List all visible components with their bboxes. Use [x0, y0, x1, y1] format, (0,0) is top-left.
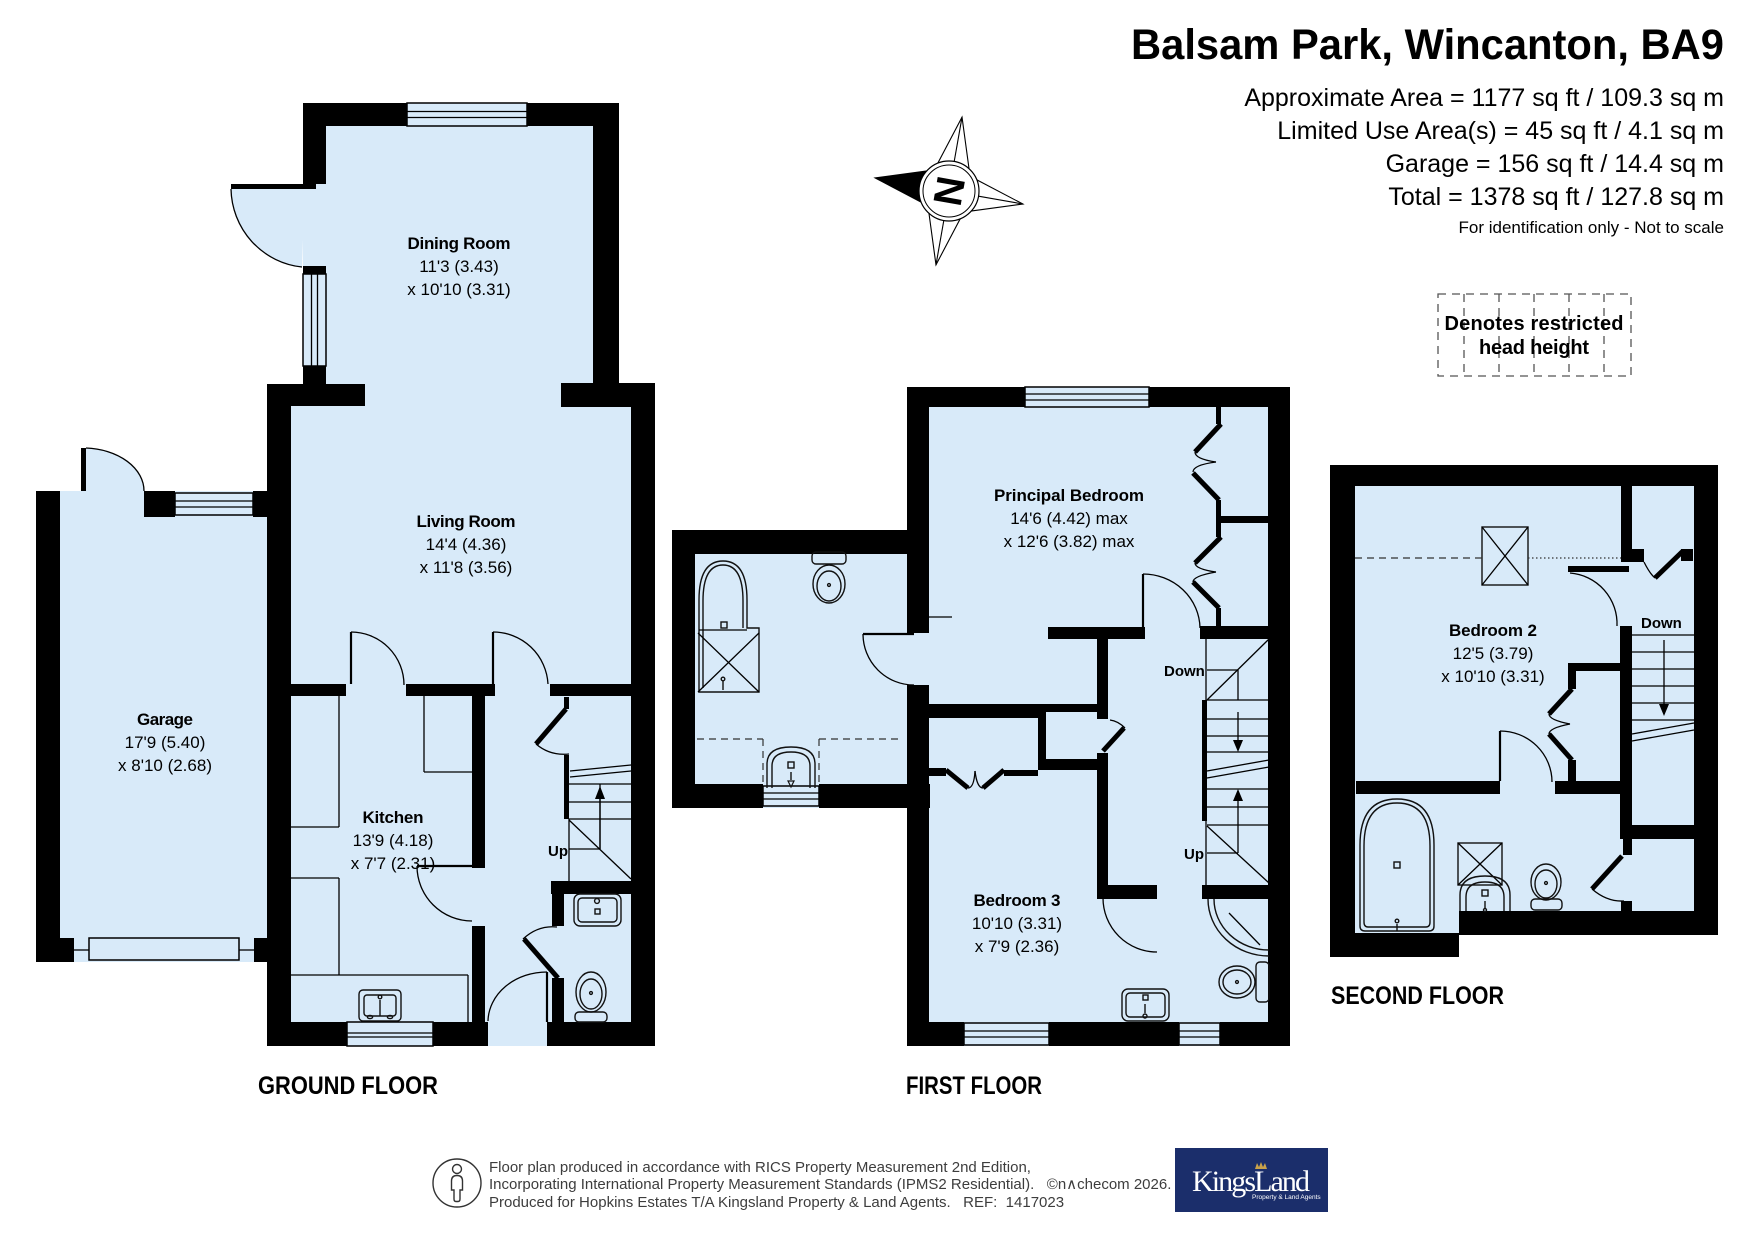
svg-text:Total = 1378 sq ft / 127.8 sq: Total = 1378 sq ft / 127.8 sq m — [1388, 183, 1724, 211]
svg-text:Bedroom 2: Bedroom 2 — [1449, 621, 1537, 640]
svg-text:x 11'8 (3.56): x 11'8 (3.56) — [420, 558, 513, 577]
svg-text:head height: head height — [1479, 337, 1589, 359]
svg-text:Produced for Hopkins Estates T: Produced for Hopkins Estates T/A Kingsla… — [489, 1194, 1064, 1211]
svg-text:11'3 (3.43): 11'3 (3.43) — [419, 257, 498, 276]
svg-text:Up: Up — [548, 843, 568, 860]
svg-text:Incorporating International Pr: Incorporating International Property Mea… — [489, 1176, 1171, 1193]
svg-text:Floor plan produced in accorda: Floor plan produced in accordance with R… — [489, 1159, 1031, 1176]
svg-text:GROUND FLOOR: GROUND FLOOR — [258, 1072, 438, 1100]
svg-text:x 8'10 (2.68): x 8'10 (2.68) — [118, 756, 212, 775]
svg-text:Dining Room: Dining Room — [408, 234, 511, 253]
svg-text:Balsam Park, Wincanton, BA9: Balsam Park, Wincanton, BA9 — [1131, 21, 1724, 69]
svg-text:12'5 (3.79): 12'5 (3.79) — [1453, 644, 1534, 663]
svg-text:Down: Down — [1641, 615, 1682, 632]
svg-text:SECOND FLOOR: SECOND FLOOR — [1331, 982, 1504, 1010]
svg-text:x 7'9 (2.36): x 7'9 (2.36) — [975, 937, 1060, 956]
svg-text:13'9 (4.18): 13'9 (4.18) — [353, 831, 434, 850]
svg-text:For identification only - Not: For identification only - Not to scale — [1458, 218, 1724, 237]
svg-text:10'10 (3.31): 10'10 (3.31) — [972, 914, 1062, 933]
svg-text:FIRST FLOOR: FIRST FLOOR — [906, 1072, 1042, 1100]
svg-text:14'4 (4.36): 14'4 (4.36) — [426, 535, 507, 554]
svg-text:Garage = 156 sq ft / 14.4 sq m: Garage = 156 sq ft / 14.4 sq m — [1386, 150, 1724, 178]
svg-text:Bedroom 3: Bedroom 3 — [974, 891, 1061, 910]
svg-text:17'9 (5.40): 17'9 (5.40) — [125, 733, 206, 752]
svg-text:Approximate Area = 1177 sq ft: Approximate Area = 1177 sq ft / 109.3 sq… — [1244, 84, 1724, 112]
svg-text:Down: Down — [1164, 663, 1205, 680]
svg-text:Living Room: Living Room — [417, 512, 516, 531]
svg-text:Up: Up — [1184, 846, 1204, 863]
svg-text:Property & Land Agents: Property & Land Agents — [1252, 1194, 1321, 1201]
svg-text:x 7'7 (2.31): x 7'7 (2.31) — [351, 854, 436, 873]
svg-text:x 10'10 (3.31): x 10'10 (3.31) — [407, 280, 510, 299]
svg-text:Limited Use Area(s) = 45 sq ft: Limited Use Area(s) = 45 sq ft / 4.1 sq … — [1277, 117, 1724, 145]
svg-text:Garage: Garage — [137, 710, 193, 729]
svg-text:Kitchen: Kitchen — [363, 808, 424, 827]
svg-text:Denotes restricted: Denotes restricted — [1445, 313, 1624, 335]
svg-text:x 12'6 (3.82) max: x 12'6 (3.82) max — [1004, 532, 1135, 551]
svg-text:x 10'10 (3.31): x 10'10 (3.31) — [1441, 667, 1544, 686]
svg-text:Principal Bedroom: Principal Bedroom — [994, 486, 1144, 505]
svg-text:14'6 (4.42) max: 14'6 (4.42) max — [1010, 509, 1128, 528]
